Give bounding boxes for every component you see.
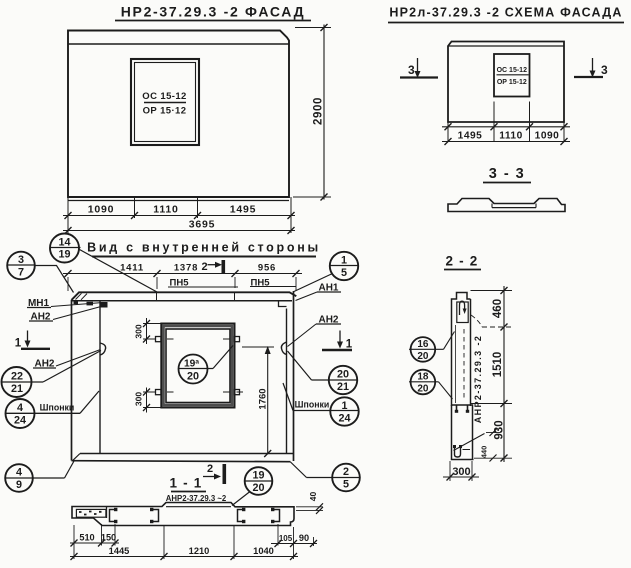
svg-text:5: 5 xyxy=(341,267,347,279)
svg-text:460: 460 xyxy=(492,299,504,318)
svg-text:ОР 15-12: ОР 15-12 xyxy=(497,79,527,86)
svg-text:300: 300 xyxy=(134,324,144,338)
svg-text:1040: 1040 xyxy=(253,546,274,556)
svg-text:НР2-37.29.3 -2 ФАСАД: НР2-37.29.3 -2 ФАСАД xyxy=(121,4,306,20)
svg-text:150: 150 xyxy=(101,533,116,543)
svg-text:1445: 1445 xyxy=(109,546,130,556)
svg-text:20: 20 xyxy=(417,384,429,395)
svg-text:20: 20 xyxy=(337,369,349,381)
svg-text:1210: 1210 xyxy=(189,546,210,556)
svg-text:4: 4 xyxy=(17,402,23,414)
svg-text:1760: 1760 xyxy=(258,388,269,409)
svg-text:510: 510 xyxy=(79,533,94,543)
svg-text:1110: 1110 xyxy=(499,131,523,142)
svg-text:АНР2-37.29.3 ~2: АНР2-37.29.3 ~2 xyxy=(166,494,227,503)
svg-text:19: 19 xyxy=(252,470,264,482)
svg-text:НР2л-37.29.3 -2 СХЕМА ФАСАДА: НР2л-37.29.3 -2 СХЕМА ФАСАДА xyxy=(389,6,622,20)
svg-text:14: 14 xyxy=(58,237,70,249)
svg-text:4: 4 xyxy=(16,467,22,479)
svg-text:Шпонки: Шпонки xyxy=(295,400,330,410)
svg-text:1090: 1090 xyxy=(88,204,115,216)
svg-text:1: 1 xyxy=(341,400,347,412)
svg-text:24: 24 xyxy=(338,413,350,425)
svg-text:2900: 2900 xyxy=(313,97,325,125)
svg-text:7: 7 xyxy=(18,267,24,279)
svg-text:16: 16 xyxy=(417,339,429,350)
svg-text:1110: 1110 xyxy=(153,204,178,216)
svg-text:2: 2 xyxy=(207,463,213,475)
svg-text:1: 1 xyxy=(341,255,347,267)
svg-text:ОР 15·12: ОР 15·12 xyxy=(143,106,187,117)
svg-text:Вид с внутренней стороны: Вид с внутренней стороны xyxy=(87,241,321,255)
svg-text:1: 1 xyxy=(15,338,22,350)
svg-text:22: 22 xyxy=(11,371,23,383)
svg-text:1495: 1495 xyxy=(458,131,483,142)
svg-text:1090: 1090 xyxy=(535,131,560,142)
svg-text:5: 5 xyxy=(343,479,349,491)
svg-text:3: 3 xyxy=(408,63,415,77)
svg-text:24: 24 xyxy=(14,415,26,427)
svg-text:2 - 2: 2 - 2 xyxy=(445,254,478,269)
svg-text:3: 3 xyxy=(601,63,608,77)
svg-text:440: 440 xyxy=(480,446,489,459)
svg-text:20: 20 xyxy=(187,371,199,383)
svg-text:3: 3 xyxy=(18,254,24,266)
svg-text:18: 18 xyxy=(417,372,429,383)
svg-text:2: 2 xyxy=(201,261,207,273)
svg-text:21: 21 xyxy=(11,383,23,395)
svg-text:АНР2-37.29.3 -2: АНР2-37.29.3 -2 xyxy=(473,335,483,424)
svg-text:1495: 1495 xyxy=(230,204,257,216)
svg-text:19: 19 xyxy=(58,249,70,261)
svg-text:90: 90 xyxy=(299,533,309,543)
svg-text:ОС 15-12: ОС 15-12 xyxy=(142,91,186,102)
svg-text:20: 20 xyxy=(417,351,429,362)
svg-text:1510: 1510 xyxy=(492,352,504,378)
svg-text:300: 300 xyxy=(134,392,144,406)
svg-text:40: 40 xyxy=(308,492,318,502)
svg-text:21: 21 xyxy=(337,381,349,393)
svg-text:105: 105 xyxy=(279,534,293,543)
svg-text:956: 956 xyxy=(258,263,276,274)
svg-text:300: 300 xyxy=(452,466,470,478)
svg-text:1378: 1378 xyxy=(174,263,198,274)
svg-text:3 - 3: 3 - 3 xyxy=(489,166,526,182)
svg-text:1 - 1: 1 - 1 xyxy=(169,476,202,491)
svg-text:9: 9 xyxy=(16,479,22,491)
svg-text:2: 2 xyxy=(343,466,349,478)
svg-text:3695: 3695 xyxy=(189,219,216,231)
svg-text:1: 1 xyxy=(346,339,353,351)
svg-text:1411: 1411 xyxy=(120,263,144,274)
svg-text:ОС 15-12: ОС 15-12 xyxy=(497,67,527,74)
svg-text:Шпонки: Шпонки xyxy=(40,403,75,413)
svg-text:20: 20 xyxy=(252,482,264,494)
